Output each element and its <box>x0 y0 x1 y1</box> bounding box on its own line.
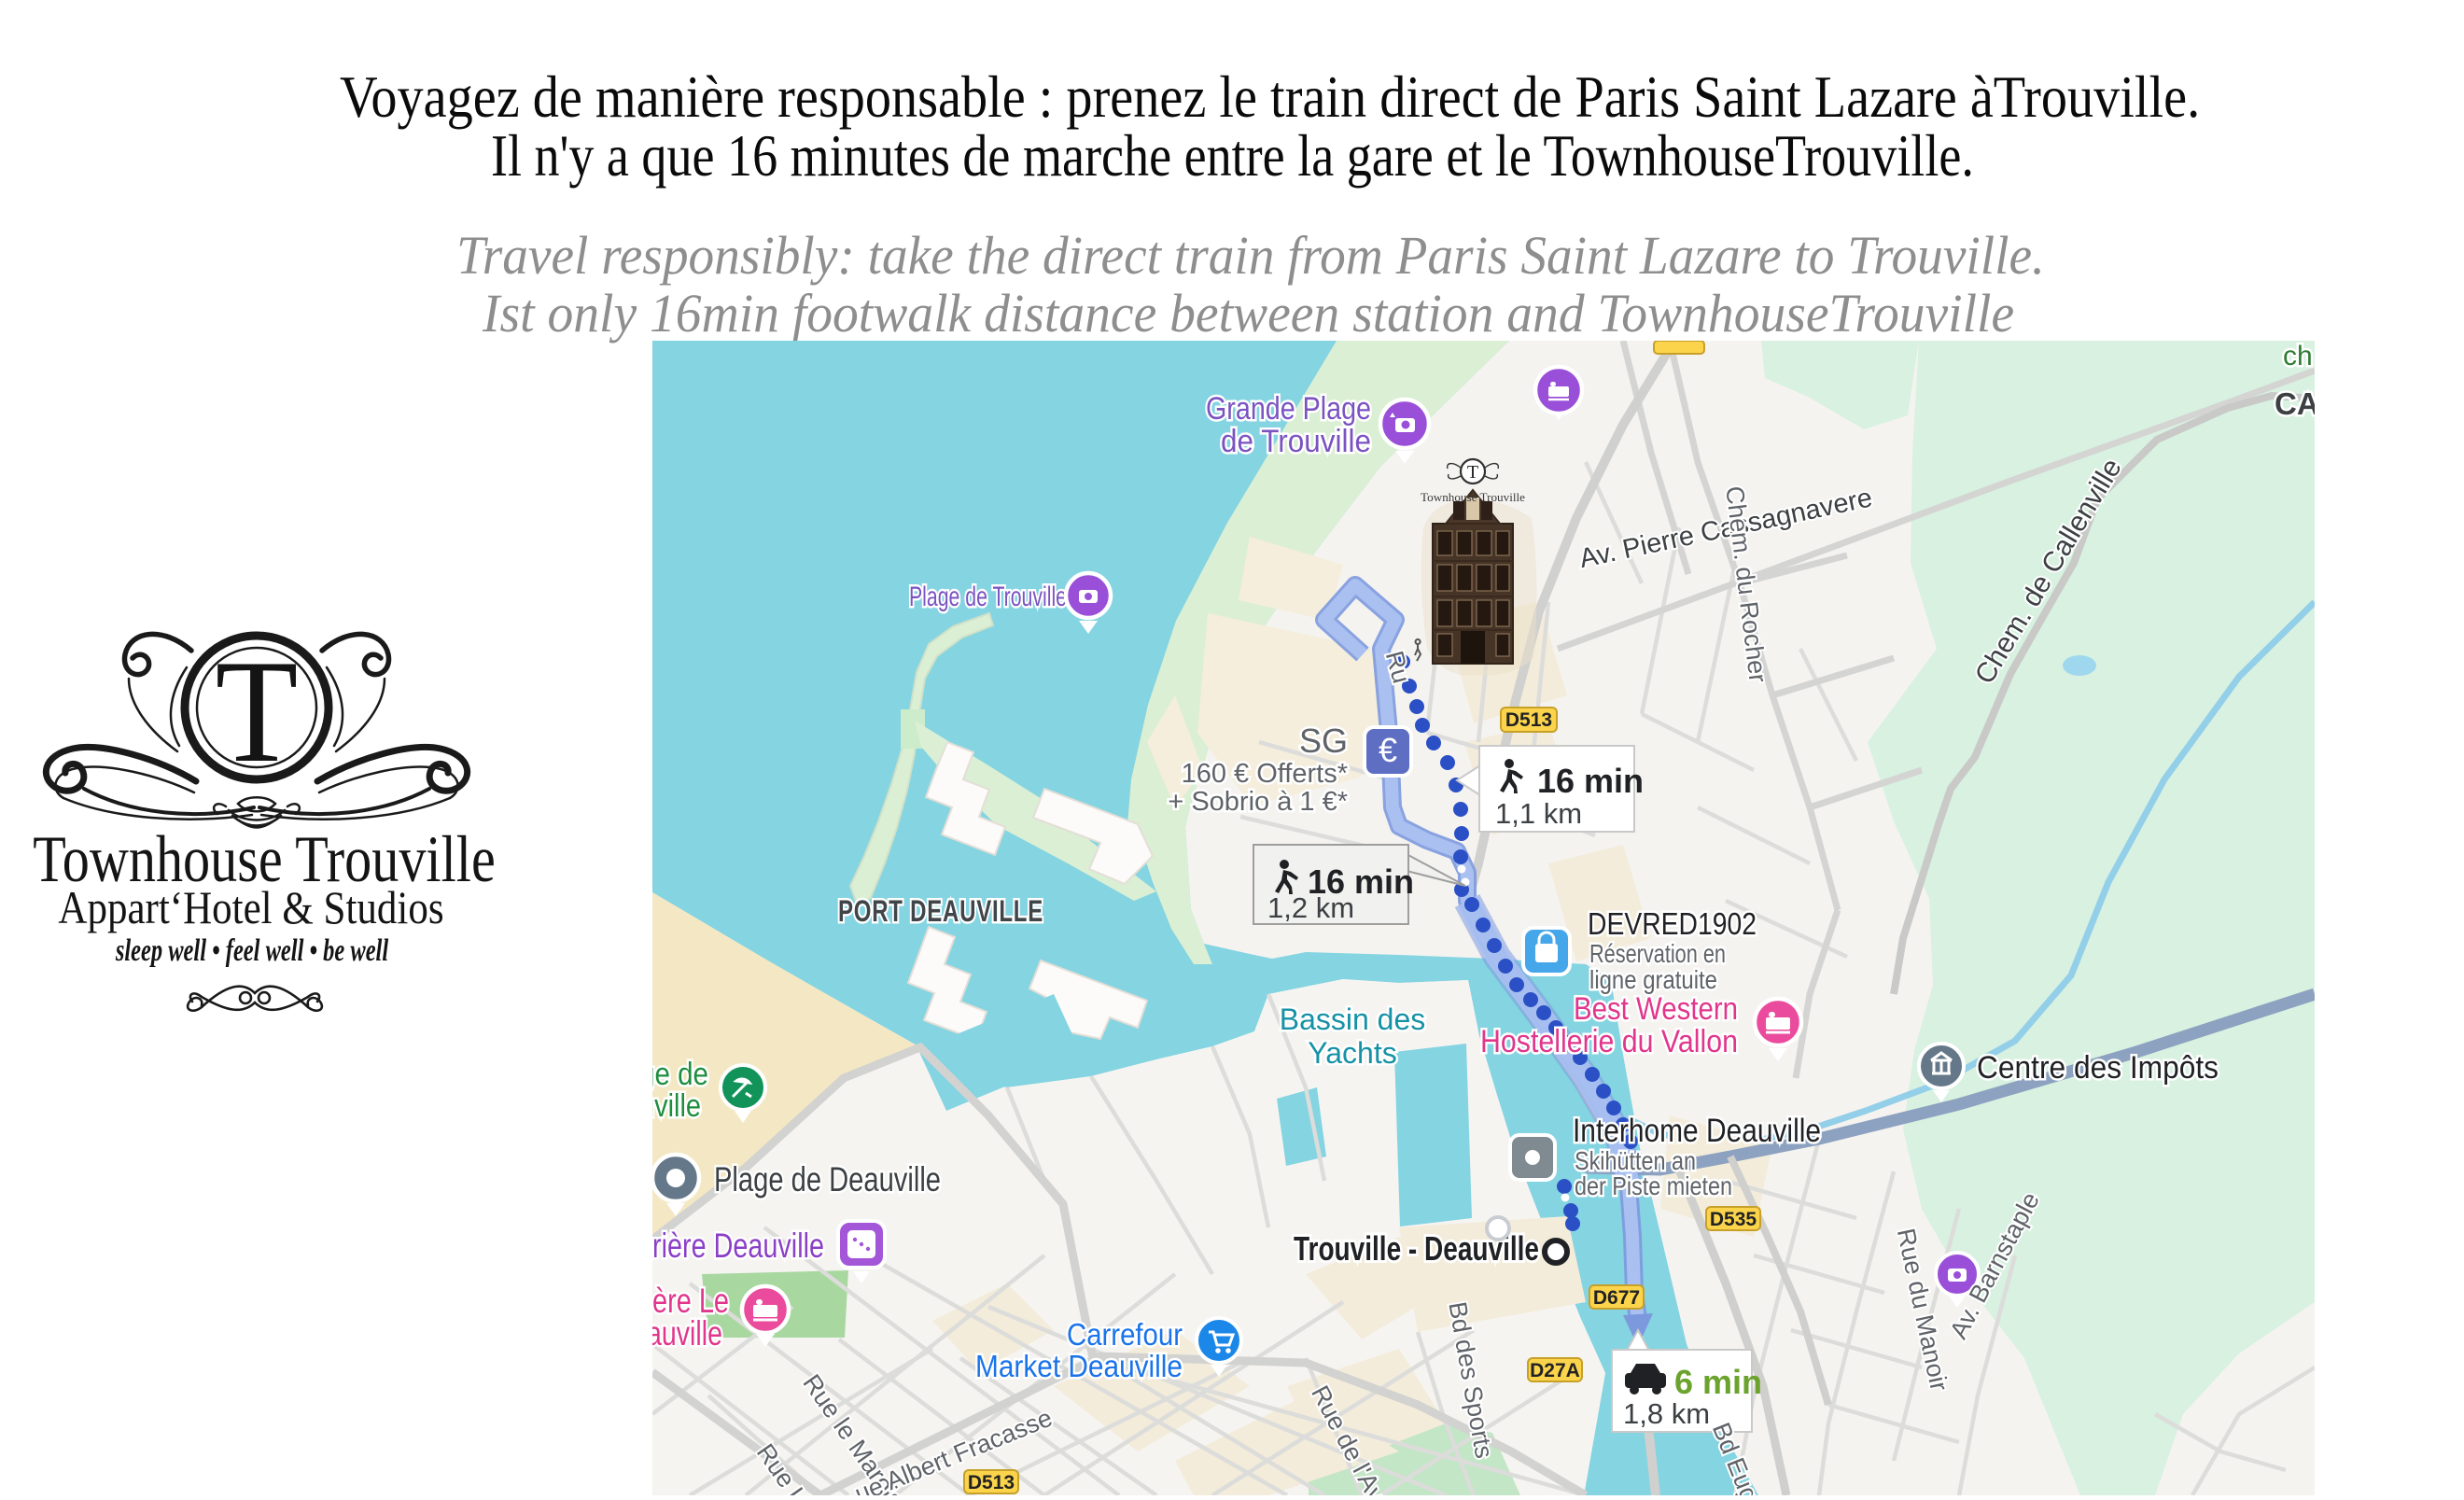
svg-text:+ Sobrio à 1 €*: + Sobrio à 1 €* <box>1168 787 1348 817</box>
svg-text:D513: D513 <box>968 1472 1015 1493</box>
svg-text:Plage de Deauville: Plage de Deauville <box>714 1160 941 1199</box>
svg-text:uville: uville <box>652 1088 701 1124</box>
svg-text:1,1 km: 1,1 km <box>1495 797 1582 830</box>
svg-text:Market Deauville: Market Deauville <box>975 1349 1183 1383</box>
svg-text:Townhouse Trouville: Townhouse Trouville <box>1421 490 1525 504</box>
svg-text:Plage de Trouville: Plage de Trouville <box>909 582 1067 612</box>
svg-text:sleep well • feel well • be we: sleep well • feel well • be well <box>115 933 389 968</box>
svg-text:T: T <box>1467 462 1478 483</box>
svg-text:Bassin des: Bassin des <box>1280 1002 1426 1036</box>
svg-text:€: € <box>1379 731 1397 769</box>
svg-text:SG: SG <box>1299 722 1348 760</box>
svg-text:ge de: ge de <box>652 1057 708 1092</box>
svg-text:1,8 km: 1,8 km <box>1623 1397 1710 1430</box>
svg-text:rière Deauville: rière Deauville <box>652 1227 824 1265</box>
svg-text:T: T <box>216 629 299 792</box>
svg-text:PORT DEAUVILLE: PORT DEAUVILLE <box>838 894 1043 928</box>
svg-text:Yachts: Yachts <box>1308 1036 1396 1070</box>
svg-text:16 min: 16 min <box>1537 762 1644 800</box>
svg-text:Best Western: Best Western <box>1574 991 1738 1027</box>
svg-text:1,2 km: 1,2 km <box>1267 891 1354 924</box>
svg-text:Hostellerie du Vallon: Hostellerie du Vallon <box>1480 1024 1738 1059</box>
svg-text:der Piste mieten: der Piste mieten <box>1575 1171 1732 1200</box>
svg-text:ch: ch <box>2283 341 2313 371</box>
svg-text:Carrefour: Carrefour <box>1067 1317 1183 1352</box>
svg-text:de Trouville: de Trouville <box>1221 424 1371 459</box>
svg-text:D535: D535 <box>1710 1209 1757 1230</box>
svg-text:Réservation en: Réservation en <box>1589 939 1726 968</box>
svg-text:6 min: 6 min <box>1674 1363 1762 1401</box>
svg-text:Interhome Deauville: Interhome Deauville <box>1573 1113 1821 1149</box>
svg-text:160 € Offerts*: 160 € Offerts* <box>1182 759 1348 789</box>
svg-text:auville: auville <box>652 1314 722 1353</box>
svg-text:DEVRED1902: DEVRED1902 <box>1588 906 1757 941</box>
svg-text:D27A: D27A <box>1530 1360 1580 1381</box>
svg-text:D513: D513 <box>1505 709 1552 731</box>
svg-text:ligne gratuite: ligne gratuite <box>1589 965 1717 994</box>
svg-text:Appart‘Hotel & Studios: Appart‘Hotel & Studios <box>58 882 443 934</box>
svg-text:Centre des Impôts: Centre des Impôts <box>1977 1050 2219 1086</box>
svg-text:CAL: CAL <box>2275 386 2315 421</box>
svg-text:Grande Plage: Grande Plage <box>1206 391 1371 427</box>
svg-text:D677: D677 <box>1593 1287 1640 1309</box>
